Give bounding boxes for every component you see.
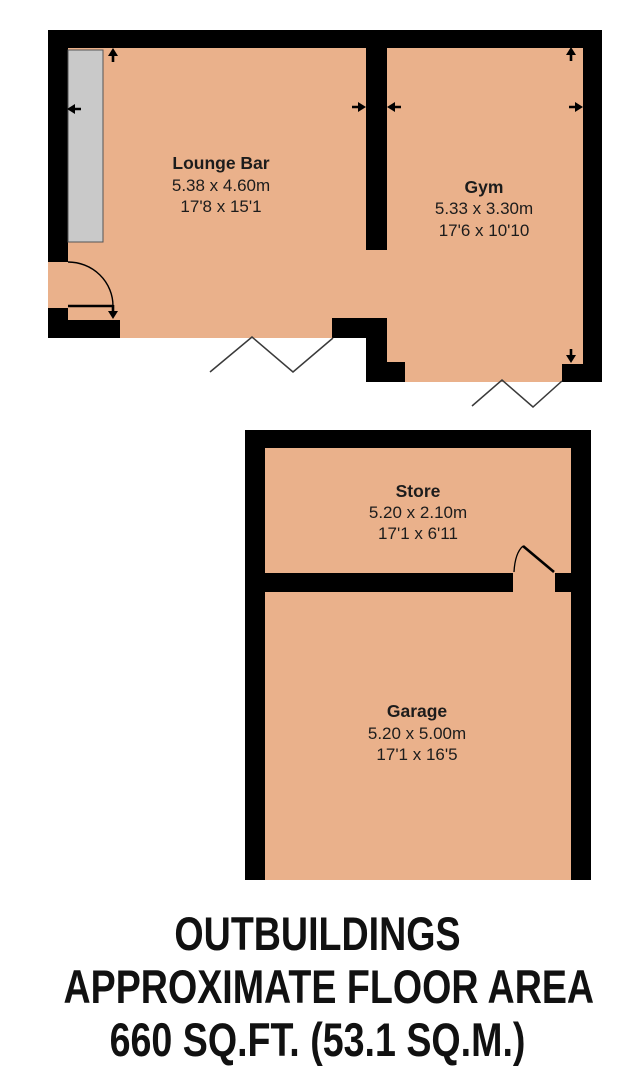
room-name-garage: Garage <box>387 701 448 721</box>
room-name-lounge-bar: Lounge Bar <box>172 153 269 173</box>
room-name-store: Store <box>396 481 441 501</box>
room-size-imperial: 17'6 x 10'10 <box>439 221 530 240</box>
wall-divider-arm <box>332 318 387 338</box>
lounge-door-recess <box>48 262 68 308</box>
break-line-right <box>472 380 562 407</box>
wall-left-upper <box>48 30 68 262</box>
plan-caption: OUTBUILDINGS APPROXIMATE FLOOR AREA 660 … <box>64 907 572 1066</box>
break-line-left <box>210 337 333 372</box>
wall-lower-top <box>245 430 591 448</box>
wall-top <box>48 30 602 48</box>
caption-subtitle: APPROXIMATE FLOOR AREA <box>64 960 572 1013</box>
wall-left-lower <box>48 308 68 338</box>
room-size-imperial: 17'8 x 15'1 <box>180 197 261 216</box>
wall-right-upper <box>583 30 602 382</box>
caption-area: 660 SQ.FT. (53.1 SQ.M.) <box>64 1013 572 1066</box>
floorplan-page: Lounge Bar 5.38 x 4.60m 17'8 x 15'1 Gym … <box>0 0 635 1080</box>
room-name-gym: Gym <box>465 177 504 197</box>
room-size-metric: 5.38 x 4.60m <box>172 176 270 195</box>
wall-gym-stub <box>562 364 583 382</box>
wall-entrance-stub <box>68 320 120 338</box>
wall-divider-lower <box>366 338 387 362</box>
room-size-metric: 5.20 x 5.00m <box>368 724 466 743</box>
wall-lower-left <box>245 430 265 880</box>
wall-store-garage-right <box>555 573 571 592</box>
wall-divider-foot <box>366 362 405 382</box>
lounge-gym-opening <box>366 250 387 318</box>
window-panel <box>68 50 103 242</box>
caption-title: OUTBUILDINGS <box>64 907 572 960</box>
room-size-metric: 5.20 x 2.10m <box>369 503 467 522</box>
wall-store-garage-left <box>245 573 513 592</box>
room-size-metric: 5.33 x 3.30m <box>435 199 533 218</box>
wall-divider-upper <box>366 48 387 250</box>
room-size-imperial: 17'1 x 16'5 <box>376 745 457 764</box>
wall-lower-right <box>571 430 591 880</box>
floor-areas <box>48 48 583 880</box>
store-door-opening <box>513 573 555 592</box>
room-size-imperial: 17'1 x 6'11 <box>378 524 458 543</box>
